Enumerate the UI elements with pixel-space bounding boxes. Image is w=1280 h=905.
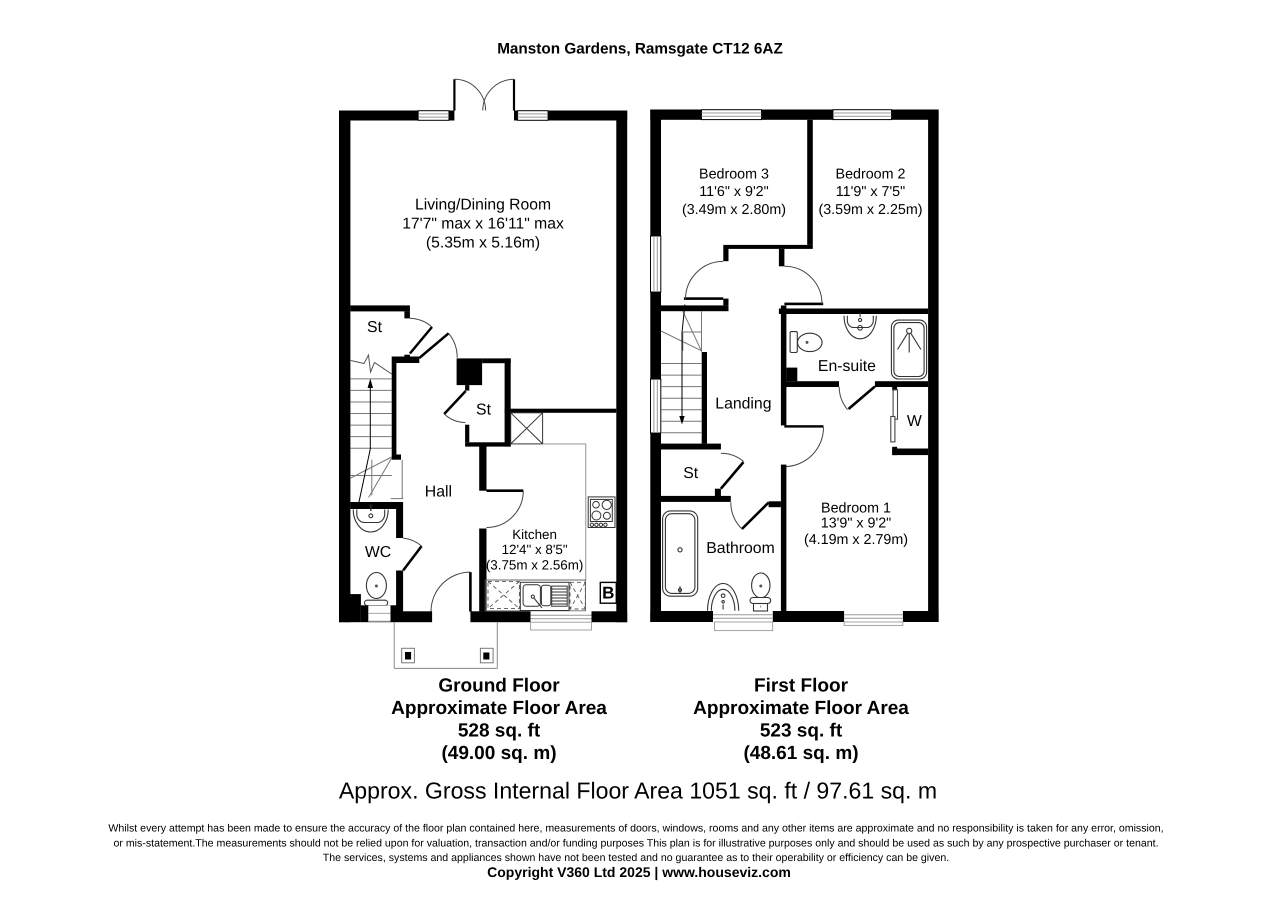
svg-text:B: B (602, 583, 614, 602)
svg-text:Kitchen: Kitchen (512, 527, 557, 542)
svg-text:13'9" x 9'2": 13'9" x 9'2" (821, 516, 891, 532)
svg-text:(3.59m x 2.25m): (3.59m x 2.25m) (818, 202, 922, 218)
svg-text:Bedroom 2: Bedroom 2 (836, 166, 906, 182)
svg-text:528 sq. ft: 528 sq. ft (458, 721, 541, 742)
svg-text:St: St (367, 319, 383, 336)
svg-text:11'9" x 7'5": 11'9" x 7'5" (836, 184, 905, 200)
svg-text:(49.00 sq. m): (49.00 sq. m) (441, 743, 556, 764)
svg-text:(48.61 sq. m): (48.61 sq. m) (743, 743, 858, 764)
svg-text:Living/Dining Room: Living/Dining Room (415, 197, 551, 214)
svg-text:St: St (476, 402, 492, 419)
svg-text:First Floor: First Floor (754, 676, 849, 697)
svg-text:17'7" max x 16'11" max: 17'7" max x 16'11" max (402, 216, 564, 233)
svg-text:Approximate Floor Area: Approximate Floor Area (391, 698, 607, 719)
svg-text:The services, systems and appl: The services, systems and appliances sho… (323, 852, 949, 864)
svg-text:523 sq. ft: 523 sq. ft (760, 721, 843, 742)
svg-text:WC: WC (365, 544, 391, 561)
svg-text:(3.75m x 2.56m): (3.75m x 2.56m) (486, 557, 584, 572)
svg-text:En-suite: En-suite (818, 358, 876, 375)
svg-text:Bedroom 3: Bedroom 3 (699, 166, 769, 182)
svg-text:W: W (907, 413, 922, 430)
svg-text:Approximate Floor Area: Approximate Floor Area (693, 698, 909, 719)
svg-text:Ground Floor: Ground Floor (438, 676, 560, 697)
svg-text:Bathroom: Bathroom (706, 540, 775, 557)
svg-text:Bedroom 1: Bedroom 1 (821, 501, 891, 517)
svg-text:Approx. Gross Internal Floor A: Approx. Gross Internal Floor Area 1051 s… (339, 778, 937, 804)
svg-text:Copyright V360 Ltd 2025 | www.: Copyright V360 Ltd 2025 | www.houseviz.c… (487, 864, 791, 881)
svg-text:St: St (683, 465, 699, 482)
svg-text:Whilst every attempt has been: Whilst every attempt has been made to en… (108, 823, 1163, 835)
svg-text:Manston Gardens, Ramsgate CT12: Manston Gardens, Ramsgate CT12 6AZ (497, 41, 783, 58)
svg-text:or mis-statement.The measureme: or mis-statement.The measurements should… (113, 838, 1158, 850)
svg-text:(4.19m x 2.79m): (4.19m x 2.79m) (804, 532, 908, 548)
svg-text:11'6" x 9'2": 11'6" x 9'2" (699, 184, 768, 200)
svg-text:Hall: Hall (425, 484, 452, 501)
svg-text:12'4" x 8'5": 12'4" x 8'5" (502, 542, 568, 557)
svg-text:(5.35m x 5.16m): (5.35m x 5.16m) (426, 235, 540, 252)
svg-text:(3.49m x 2.80m): (3.49m x 2.80m) (682, 202, 786, 218)
svg-text:Landing: Landing (715, 396, 771, 413)
